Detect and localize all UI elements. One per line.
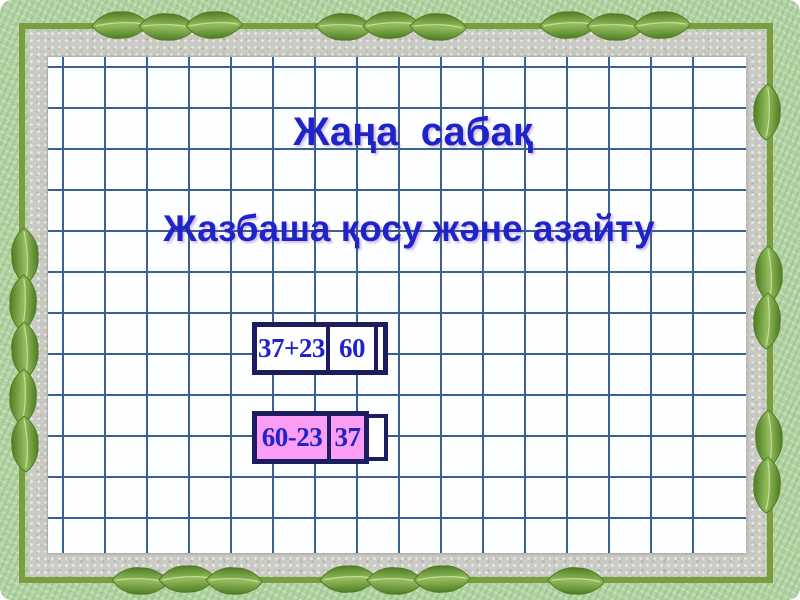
expression-cell: 37+23	[257, 327, 326, 370]
expression-cell: 60-23	[257, 416, 327, 459]
addition-problem-box: 37+23 60	[252, 322, 388, 375]
slide-canvas: Жаңа сабақ Жазбаша қосу және азайту 37+2…	[0, 0, 800, 600]
result-cell: 37	[331, 416, 364, 459]
subtraction-problem-box: 60-23 37	[252, 411, 392, 464]
subtraction-problem-main: 60-23 37	[252, 411, 369, 464]
lesson-title: Жаңа сабақ	[64, 110, 762, 155]
result-cell: 60	[330, 327, 374, 370]
hidden-cell	[378, 327, 383, 370]
lesson-subtitle: Жазбаша қосу және азайту	[60, 208, 758, 250]
